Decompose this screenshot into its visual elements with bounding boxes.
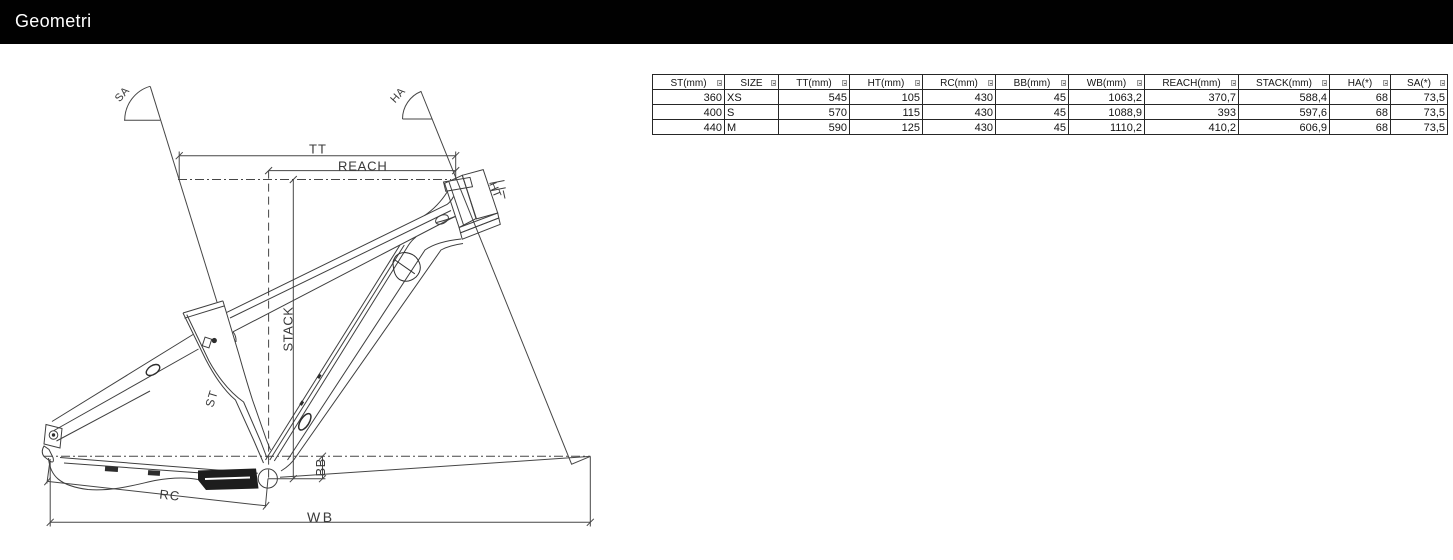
svg-text:ST: ST (202, 388, 220, 409)
svg-text:REACH: REACH (338, 159, 388, 174)
svg-text:WB: WB (307, 509, 335, 525)
svg-text:STACK: STACK (281, 307, 296, 352)
svg-text:SA: SA (113, 85, 133, 105)
svg-text:TT: TT (309, 142, 327, 157)
svg-text:HA: HA (388, 85, 408, 105)
svg-text:RC: RC (159, 487, 181, 504)
